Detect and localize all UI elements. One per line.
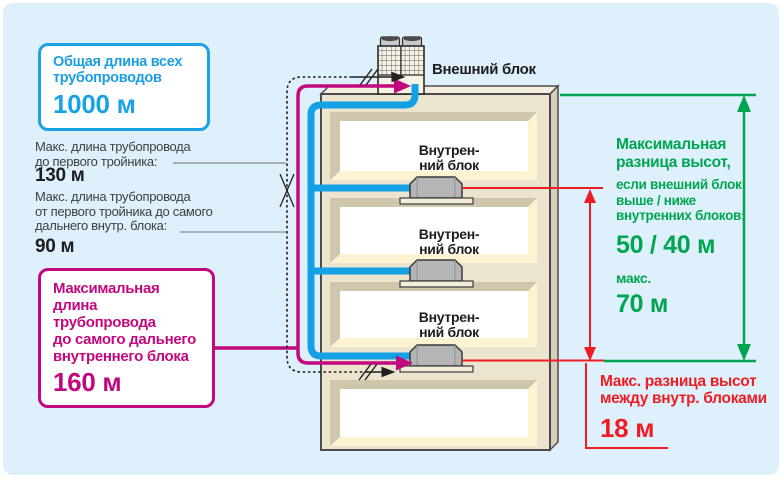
first-tee-value: 130 м [35, 166, 85, 186]
outdoor-unit-label: Внешний блок [432, 61, 536, 78]
indoor-unit-label: Внутрен- ний блок [398, 310, 500, 340]
indoor-height-diff-title: Макс. разница высот между внутр. блоками [600, 373, 767, 407]
total-pipe-length-box: Общая длина всех трубопроводов 1000 м [38, 43, 210, 131]
indoor-height-diff-block: Макс. разница высот между внутр. блоками… [600, 373, 767, 442]
indoor-unit-label: Внутрен- ний блок [398, 143, 500, 173]
outdoor-height-diff-block: Максимальная разница высот, если внешний… [616, 136, 768, 317]
red-arrow-up [584, 189, 596, 203]
max-pipe-length-title: Максимальная длина трубопровода до самог… [53, 280, 202, 365]
green-arrow-up [737, 95, 751, 112]
green-arrow-down [737, 344, 751, 361]
outdoor-height-diff-condition: если внешний блок выше / ниже внутренних… [616, 177, 768, 224]
tee-to-farthest-note: Макс. длина трубопровода от первого трой… [35, 190, 213, 234]
outdoor-height-diff-max-label: макс. [616, 271, 768, 286]
total-pipe-length-title: Общая длина всех трубопроводов [53, 54, 195, 86]
total-pipe-length-value: 1000 м [53, 90, 195, 118]
indoor-height-diff-value: 18 м [600, 414, 767, 442]
red-arrow-down [584, 347, 596, 361]
indoor-unit-label: Внутрен- ний блок [398, 227, 500, 257]
vrf-piping-infographic: Общая длина всех трубопроводов 1000 м Ма… [0, 0, 782, 478]
max-pipe-length-box: Максимальная длина трубопровода до самог… [38, 268, 215, 408]
tee-to-farthest-value: 90 м [35, 237, 74, 257]
max-pipe-length-value: 160 м [53, 368, 202, 396]
outdoor-height-diff-title: Максимальная разница высот, [616, 136, 768, 171]
outdoor-height-diff-value: 50 / 40 м [616, 232, 768, 258]
room-opening [330, 380, 537, 446]
outdoor-height-diff-max-value: 70 м [616, 291, 768, 317]
